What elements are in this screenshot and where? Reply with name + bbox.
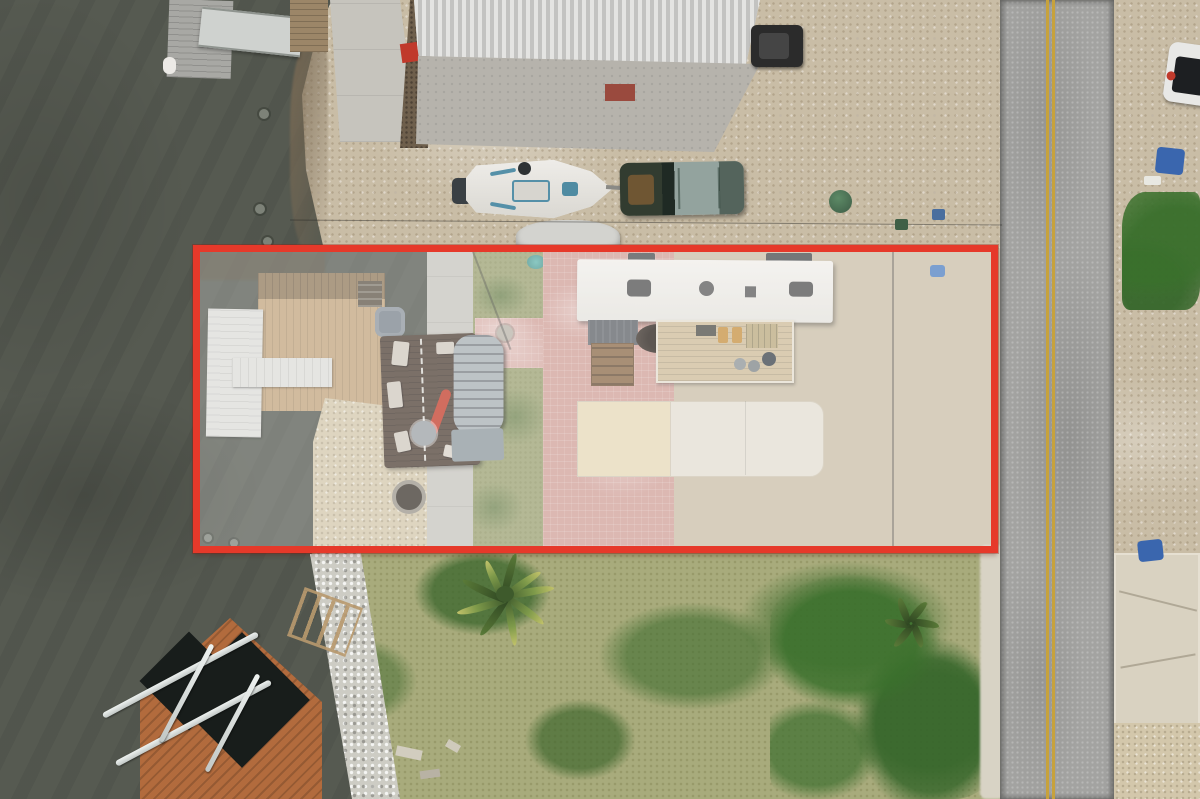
- small-green-box: [895, 219, 908, 230]
- paved-road: [1000, 0, 1114, 799]
- aerial-photo: [0, 0, 1200, 799]
- roadside-vegetation: [1122, 192, 1200, 310]
- center-console-boat-on-trailer: [452, 158, 612, 220]
- brick-border-patch: [605, 84, 635, 101]
- concrete-apron: [416, 56, 762, 152]
- property-boundary-outline: [193, 245, 998, 553]
- small-blue-box: [932, 209, 945, 220]
- palm-tree: [452, 548, 558, 648]
- white-cooler: [1144, 176, 1161, 185]
- dock-piling: [259, 109, 269, 119]
- blue-trash-bin: [1155, 147, 1186, 176]
- palm-crown: [496, 586, 514, 602]
- moored-boat-edge: [163, 57, 176, 74]
- red-roof-edge: [400, 42, 419, 63]
- truck-roof-lines: [678, 167, 721, 209]
- shoreline-mulch-edge: [290, 48, 328, 248]
- dock-piling: [255, 204, 265, 214]
- boat-deck-tire: [518, 162, 531, 175]
- boat-bow-cushion: [562, 182, 578, 196]
- sandy-corner: [1114, 723, 1200, 799]
- parked-dark-utility-vehicle: [751, 25, 803, 67]
- cracked-concrete-driveway-slab: [1114, 553, 1200, 725]
- suv-windshield-roof: [1171, 56, 1200, 96]
- blue-trash-bin: [1137, 539, 1164, 562]
- double-yellow-centerline: [1046, 0, 1055, 799]
- vehicle-top-detail: [759, 33, 789, 59]
- brown-dock-section: [290, 0, 328, 52]
- boat-console: [512, 180, 550, 202]
- metal-roof-building: [414, 0, 760, 64]
- pickup-truck: [620, 161, 745, 216]
- yucca-plant: [882, 592, 940, 650]
- utility-dome: [829, 190, 852, 213]
- truck-bed-cargo: [628, 174, 655, 204]
